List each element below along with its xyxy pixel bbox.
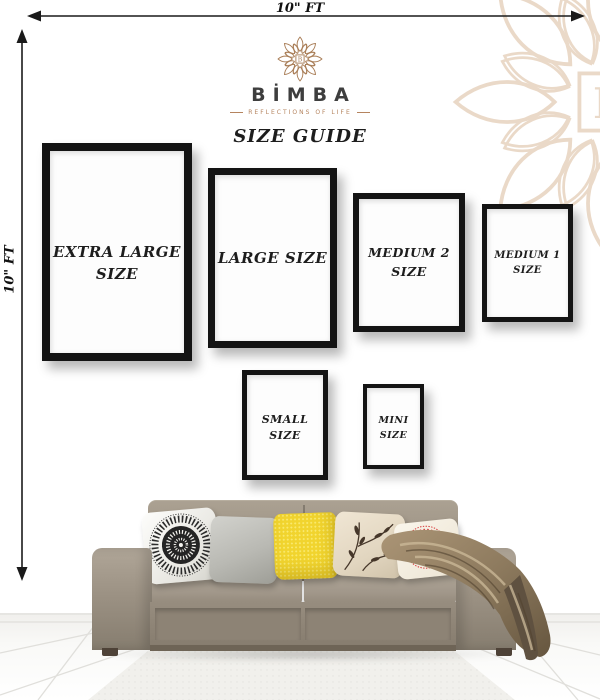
pillow-plain-gray	[209, 516, 279, 584]
wall-width-label: 10" FT	[0, 1, 600, 16]
tagline-dash-left	[230, 112, 243, 113]
frame-label: MINISIZE	[378, 410, 408, 443]
brand-tagline-row: REFLECTIONS OF LIFE	[0, 109, 600, 116]
frame-label: MEDIUM 2SIZE	[368, 244, 450, 282]
frame-extra-large: EXTRA LARGESIZE	[42, 143, 192, 361]
size-guide-poster: B	[0, 0, 600, 700]
brand-tagline: REFLECTIONS OF LIFE	[248, 109, 352, 116]
frame-label: MEDIUM 1SIZE	[494, 248, 560, 278]
sofa-arm-left	[92, 548, 152, 650]
frame-label: EXTRA LARGESIZE	[53, 219, 181, 286]
brand-name: BİMBA	[0, 84, 600, 106]
frame-small: SMALLSIZE	[242, 370, 328, 480]
wall-height-label: 10" FT	[3, 240, 18, 300]
frame-mini: MINISIZE	[363, 384, 424, 469]
frame-medium-1: MEDIUM 1SIZE	[482, 204, 573, 322]
frame-medium-2: MEDIUM 2SIZE	[353, 193, 465, 332]
sofa-foot-left	[102, 648, 118, 656]
brand-block: BİMBA REFLECTIONS OF LIFE SIZE GUIDE	[0, 36, 600, 147]
frame-label: SMALLSIZE	[262, 406, 309, 445]
frame-label: LARGE SIZE	[218, 247, 327, 270]
sofa-front-panel	[155, 608, 301, 640]
tagline-dash-right	[357, 112, 370, 113]
frame-large: LARGE SIZE	[208, 168, 337, 348]
pillow-yellow-dotted	[273, 512, 339, 580]
flower-mandala-icon	[277, 36, 323, 82]
throw-blanket	[370, 515, 580, 665]
